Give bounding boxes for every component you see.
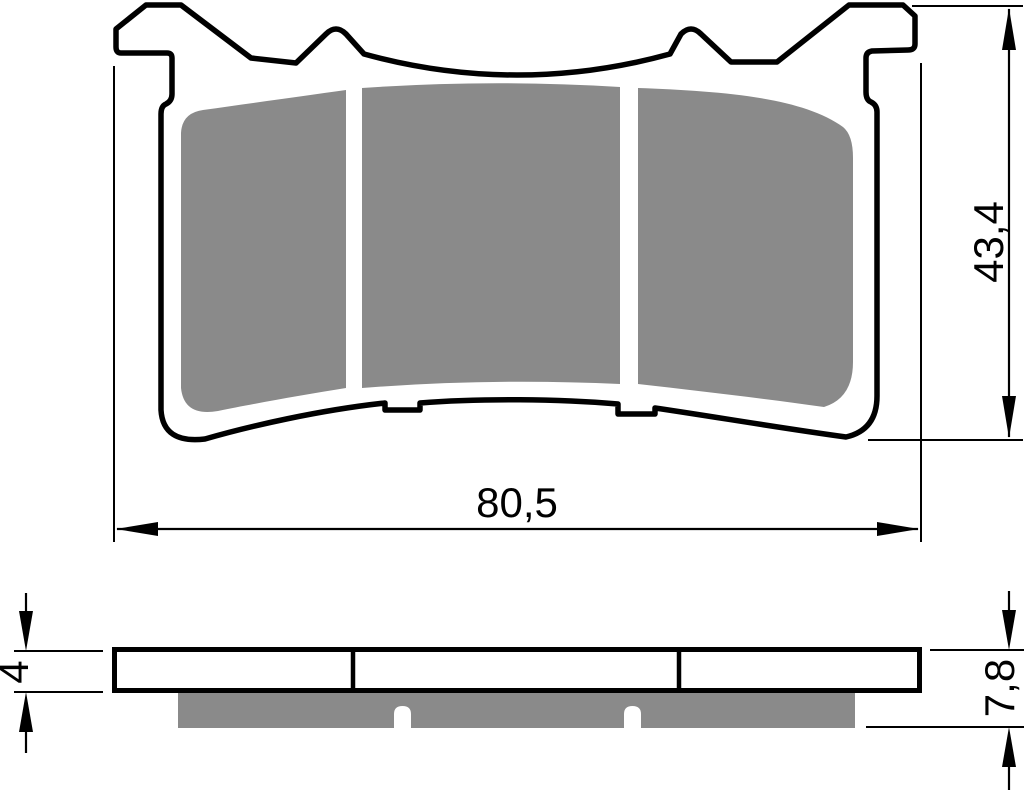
front-view: [116, 5, 915, 440]
drawing-canvas: 80,5 43,4 4: [0, 0, 1024, 790]
arrowhead-down: [1002, 610, 1016, 650]
arrowhead-up: [1002, 727, 1016, 767]
dimension-overall-height: 43,4: [868, 6, 1023, 440]
backplate-side: [115, 650, 920, 691]
dimension-label-overall-width: 80,5: [476, 479, 558, 526]
arrowhead-down: [19, 611, 33, 651]
friction-material-side: [178, 692, 855, 728]
dimension-label-overall-thickness: 7,8: [976, 659, 1023, 717]
dimension-label-backplate-thickness: 4: [0, 660, 37, 683]
dimension-label-overall-height: 43,4: [965, 201, 1012, 283]
friction-pad-segment-left: [181, 90, 346, 412]
side-view: [115, 650, 920, 729]
arrowhead-right: [877, 522, 919, 536]
friction-pad-segment-right: [638, 88, 853, 407]
arrowhead-up: [19, 692, 33, 732]
arrowhead-up: [1002, 8, 1016, 50]
friction-pad-segment-center: [362, 83, 620, 388]
arrowhead-left: [116, 522, 158, 536]
arrowhead-down: [1002, 396, 1016, 438]
brake-pad-drawing: 80,5 43,4 4: [0, 0, 1024, 790]
dimension-backplate-thickness: 4: [0, 593, 103, 753]
